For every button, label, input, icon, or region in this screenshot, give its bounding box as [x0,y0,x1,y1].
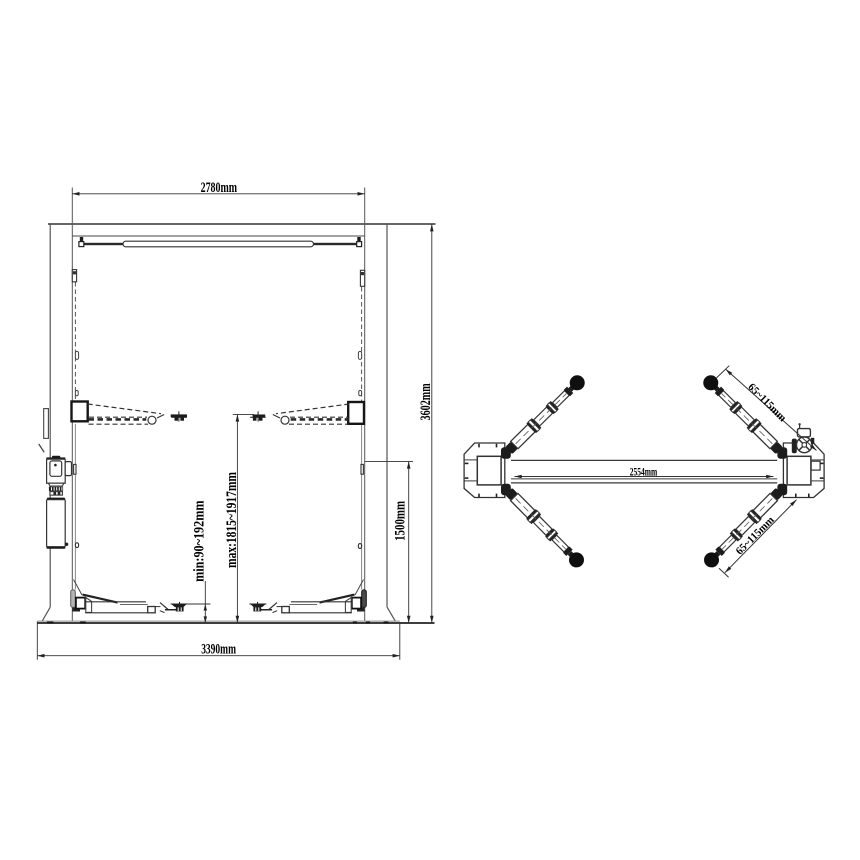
svg-text:max:1815~1917mm: max:1815~1917mm [224,472,240,568]
svg-text:1500mm: 1500mm [393,501,409,541]
svg-text:2554mm: 2554mm [630,465,657,479]
svg-text:3602mm: 3602mm [418,383,434,420]
svg-text:3390mm: 3390mm [201,642,236,658]
svg-text:min:90~192mm: min:90~192mm [191,501,207,582]
svg-text:2780mm: 2780mm [201,180,238,196]
